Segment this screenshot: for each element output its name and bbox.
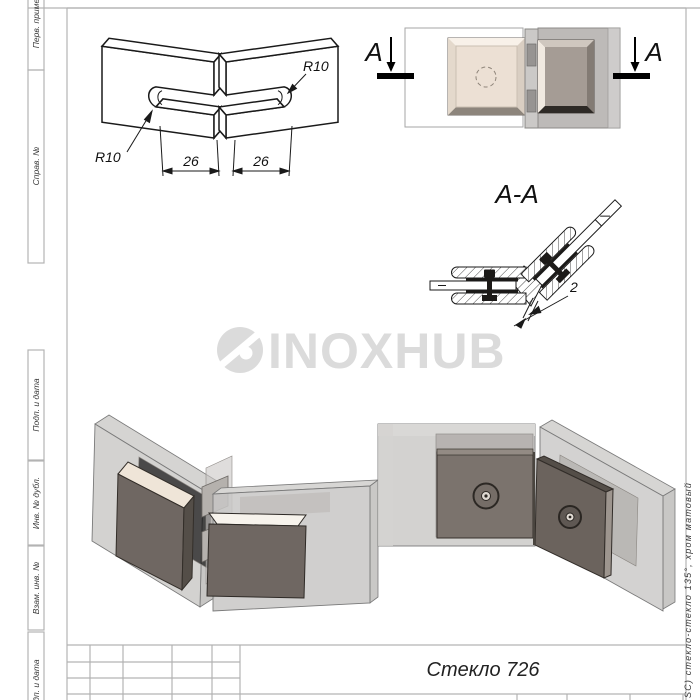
- screw2-dot: [569, 516, 572, 519]
- bevel-top: [538, 40, 594, 47]
- bevel-bottom: [448, 107, 525, 115]
- watermark: INOXHUB: [217, 323, 506, 379]
- dim-gap-2: 2: [569, 279, 578, 295]
- section-arrowhead-left: [387, 62, 396, 72]
- drawing-sheet: Перв. примен. Справ. № Подп. и дата Инв.…: [0, 0, 700, 700]
- clamp-left-top: [448, 38, 525, 115]
- watermark-logo-hole: [240, 347, 253, 360]
- clamp-side: [182, 496, 194, 590]
- margin-label-podp1: Подп. и дата: [31, 378, 41, 431]
- watermark-text: INOXHUB: [268, 323, 506, 379]
- margin-label-vzam: Взам. инв. №: [31, 562, 41, 615]
- clamp-right-top: [538, 40, 594, 113]
- bevel-bottom-dark: [538, 106, 594, 113]
- section-arrowhead-right: [631, 62, 640, 72]
- side-note-text: SC) стекло-стекло 135°, хром матовый: [683, 482, 693, 698]
- clamp-top-edge: [437, 449, 533, 455]
- drawing-canvas: Перв. примен. Справ. № Подп. и дата Инв.…: [0, 0, 700, 700]
- dim-r10-right: R10: [303, 58, 329, 74]
- section-view-label: А-А: [493, 179, 538, 209]
- screw-head: [484, 270, 495, 278]
- clamp2-side-bevel: [604, 489, 613, 578]
- glass-left-band: [378, 424, 393, 546]
- margin-label-perv: Перв. примен.: [31, 0, 41, 48]
- bevel-top: [448, 38, 525, 46]
- glass-section-angled: [536, 200, 622, 286]
- section-letter-left: А: [363, 37, 382, 67]
- bevel-right: [587, 40, 594, 113]
- margin-label-inv-dubl: Инв. № дубл.: [31, 477, 41, 529]
- hinge-knuckle-1: [527, 44, 536, 66]
- glass2-end-face: [663, 489, 675, 609]
- title-block: Стекло 726: [67, 645, 686, 700]
- hinge-knuckle-2: [527, 90, 536, 112]
- render-3d-right: [378, 420, 675, 611]
- part-title: Стекло 726: [427, 659, 541, 681]
- view-iso: R10 R10 26 26: [95, 37, 338, 176]
- section-tick-left: [377, 73, 414, 79]
- dim-r10-left: R10: [95, 149, 121, 165]
- dim-26-left: 26: [182, 153, 199, 169]
- bevel-left-cream: [538, 40, 545, 113]
- iso-plate-right: [219, 37, 338, 139]
- screw-dot: [484, 494, 487, 497]
- clamp2-face: [207, 524, 306, 598]
- clamp-left-inner: [456, 46, 517, 107]
- bevel-right: [517, 38, 525, 115]
- profile-horizontal: [430, 267, 526, 304]
- margin-label-sprav: Справ. №: [31, 147, 41, 186]
- margin-label-podp2: Подп. и дата: [31, 659, 41, 700]
- clamp-right-inner: [545, 47, 587, 106]
- iso-plate-left: [102, 37, 221, 139]
- dim-26-right: 26: [252, 153, 269, 169]
- glass2-end-face: [370, 480, 378, 603]
- screw-shaft: [487, 277, 492, 296]
- section-tick-right: [613, 73, 650, 79]
- render-3d-left: [92, 415, 378, 611]
- screw-nut: [482, 295, 497, 301]
- section-letter-right: А: [643, 37, 662, 67]
- view-section: А-А: [430, 179, 631, 328]
- bevel-left: [448, 38, 456, 115]
- view-top: А А: [363, 28, 662, 128]
